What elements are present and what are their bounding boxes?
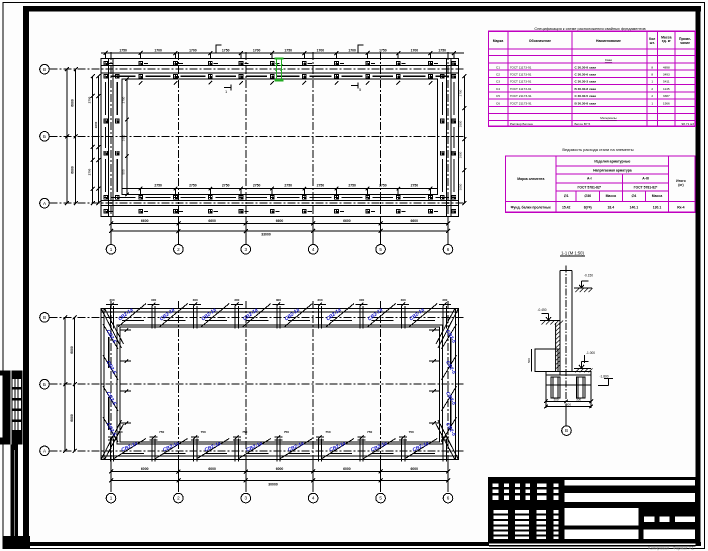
svg-text:300: 300 (576, 397, 581, 401)
svg-text:2700: 2700 (88, 168, 92, 175)
svg-text:2750: 2750 (253, 184, 261, 188)
svg-text:В: В (43, 315, 46, 320)
svg-text:Фунд. балки пролетные: Фунд. балки пролетные (511, 205, 551, 209)
svg-text:4898: 4898 (663, 65, 670, 69)
svg-text:1700: 1700 (189, 49, 197, 53)
svg-text:1: 1 (110, 247, 113, 252)
svg-text:6000: 6000 (276, 467, 284, 471)
svg-text:750: 750 (159, 430, 164, 434)
svg-text:Наименование: Наименование (596, 39, 621, 43)
svg-text:ГОСТ 11173-91: ГОСТ 11173-91 (510, 73, 532, 77)
svg-text:1700: 1700 (348, 49, 356, 53)
svg-text:4: 4 (312, 496, 315, 501)
svg-text:-0.450: -0.450 (538, 308, 547, 312)
svg-text:300: 300 (276, 298, 281, 302)
svg-text:8: 8 (651, 73, 653, 77)
svg-text:1: 1 (651, 101, 653, 105)
svg-text:Б: Б (43, 134, 46, 139)
svg-text:15.42: 15.42 (562, 205, 571, 209)
svg-text:1-1 (М 1:50): 1-1 (М 1:50) (561, 251, 584, 256)
svg-text:2750: 2750 (379, 184, 387, 188)
svg-text:6000: 6000 (343, 467, 351, 471)
svg-text:6000: 6000 (411, 467, 419, 471)
svg-text:750: 750 (284, 430, 289, 434)
svg-text:750: 750 (409, 430, 414, 434)
svg-text:300: 300 (401, 298, 406, 302)
svg-text:1750: 1750 (379, 49, 387, 53)
svg-text:1750: 1750 (119, 49, 127, 53)
svg-text:шт.: шт. (650, 41, 655, 45)
svg-text:6600: 6600 (208, 219, 216, 223)
svg-text:6: 6 (447, 496, 450, 501)
svg-text:А-III: А-III (642, 177, 648, 181)
svg-text:300: 300 (442, 298, 447, 302)
svg-text:6600: 6600 (343, 219, 351, 223)
svg-text:В 30.30-8 сваи: В 30.30-8 сваи (575, 101, 597, 105)
svg-text:750: 750 (201, 430, 206, 434)
svg-text:2750: 2750 (154, 184, 162, 188)
svg-text:2700: 2700 (459, 89, 463, 96)
svg-text:(кг): (кг) (678, 183, 683, 187)
svg-text:2750: 2750 (348, 184, 356, 188)
svg-text:5: 5 (379, 496, 382, 501)
svg-text:300: 300 (553, 397, 558, 401)
svg-text:4: 4 (312, 247, 315, 252)
svg-text:3: 3 (245, 247, 248, 252)
svg-text:2750: 2750 (411, 184, 419, 188)
svg-text:Б: Б (43, 382, 46, 387)
svg-text:С 30.30-5 сваи: С 30.30-5 сваи (575, 94, 597, 98)
svg-text:750: 750 (242, 430, 247, 434)
svg-text:Материалы: Материалы (600, 116, 617, 120)
svg-text:1145: 1145 (663, 87, 670, 91)
svg-text:Обозначение: Обозначение (529, 39, 551, 43)
svg-text:1750: 1750 (438, 49, 446, 53)
svg-text:С4: С4 (496, 87, 500, 91)
svg-text:С 30.30-6 сваи: С 30.30-6 сваи (575, 73, 597, 77)
svg-text:1600: 1600 (122, 134, 126, 141)
svg-text:1700: 1700 (317, 49, 325, 53)
svg-text:ГОСТ 11173-91: ГОСТ 11173-91 (510, 87, 532, 91)
svg-text:С6: С6 (496, 101, 500, 105)
svg-text:750: 750 (325, 430, 330, 434)
svg-text:С 30.30-3 сваи: С 30.30-3 сваи (575, 80, 597, 84)
svg-text:5: 5 (379, 247, 382, 252)
svg-text:1750: 1750 (222, 49, 230, 53)
svg-text:В 30.30-8 сваи: В 30.30-8 сваи (575, 87, 597, 91)
svg-text:3: 3 (245, 496, 248, 501)
svg-text:8(74): 8(74) (584, 205, 592, 209)
svg-text:С 30.30-8 сваи: С 30.30-8 сваи (575, 65, 597, 69)
svg-text:6000: 6000 (71, 99, 75, 107)
svg-text:6600: 6600 (141, 219, 149, 223)
svg-text:чание: чание (680, 41, 690, 45)
svg-text:300: 300 (359, 298, 364, 302)
svg-text:6000: 6000 (70, 414, 74, 422)
svg-text:2700: 2700 (122, 96, 126, 103)
svg-text:Марка: Марка (493, 39, 504, 43)
svg-text:6600: 6600 (411, 219, 419, 223)
svg-text:Напрягаемая арматура: Напрягаемая арматура (593, 169, 632, 173)
svg-text:500: 500 (527, 358, 531, 363)
svg-text:2: 2 (651, 94, 653, 98)
svg-text:В: В (565, 428, 568, 433)
svg-text:6000: 6000 (71, 166, 75, 174)
svg-text:8: 8 (651, 65, 653, 69)
svg-text:ГОСТ 21173-91: ГОСТ 21173-91 (510, 94, 532, 98)
svg-text:Марка элемента: Марка элемента (517, 177, 544, 181)
svg-text:∅4: ∅4 (631, 194, 636, 198)
svg-text:В: В (43, 67, 46, 72)
svg-text:-1.000: -1.000 (586, 351, 595, 355)
svg-text:2750: 2750 (284, 184, 292, 188)
svg-text:18.4: 18.4 (607, 205, 614, 209)
svg-text:6000: 6000 (141, 467, 149, 471)
svg-text:Сваи: Сваи (605, 58, 613, 62)
svg-text:33000: 33000 (261, 233, 271, 237)
svg-text:∅36: ∅36 (584, 194, 591, 198)
svg-text:ГОСТ 5781-82*: ГОСТ 5781-82* (634, 185, 658, 189)
svg-text:Бетон В7.5: Бетон В7.5 (575, 122, 591, 126)
svg-text:3387: 3387 (663, 94, 670, 98)
svg-text:С1: С1 (496, 65, 500, 69)
svg-text:300: 300 (234, 298, 239, 302)
svg-text:2750: 2750 (317, 184, 325, 188)
svg-text:1: 1 (651, 80, 653, 84)
svg-text:2: 2 (177, 496, 180, 501)
svg-text:3493: 3493 (663, 73, 670, 77)
svg-text:ГОСТ 11173-91: ГОСТ 11173-91 (510, 80, 532, 84)
svg-text:750: 750 (367, 430, 372, 434)
svg-text:600: 600 (566, 403, 571, 407)
svg-text:Ведомость расхода стали на эле: Ведомость расхода стали на элементы (562, 147, 633, 152)
svg-text:1800: 1800 (459, 120, 463, 127)
svg-text:1: 1 (110, 496, 113, 501)
svg-text:750: 750 (117, 430, 122, 434)
svg-text:98.71 м3: 98.71 м3 (682, 122, 695, 126)
svg-text:ГОСТ 5781-82*: ГОСТ 5781-82* (577, 185, 601, 189)
svg-text:1566: 1566 (663, 101, 670, 105)
svg-text:2: 2 (177, 247, 180, 252)
svg-text:140.1: 140.1 (630, 205, 639, 209)
svg-text:Изделия арматурные: Изделия арматурные (594, 160, 630, 164)
svg-text:2750: 2750 (189, 184, 197, 188)
svg-text:30000: 30000 (268, 482, 278, 486)
svg-text:6000: 6000 (208, 467, 216, 471)
svg-text:6000: 6000 (70, 346, 74, 354)
svg-text:Копировал Формат А1: Копировал Формат А1 (648, 545, 694, 550)
svg-text:Rx-4: Rx-4 (677, 205, 684, 209)
svg-text:6: 6 (447, 247, 450, 252)
svg-text:500: 500 (122, 169, 126, 174)
svg-text:1600: 1600 (94, 121, 98, 128)
svg-text:1700: 1700 (253, 49, 261, 53)
svg-text:2: 2 (651, 87, 653, 91)
svg-text:Масса: Масса (652, 194, 663, 198)
svg-text:130.1: 130.1 (653, 205, 662, 209)
svg-text:Масса: Масса (606, 194, 617, 198)
svg-text:А-I: А-I (587, 177, 592, 181)
svg-text:ГОСТ 11173-91: ГОСТ 11173-91 (510, 65, 532, 69)
svg-text:2700: 2700 (88, 96, 92, 103)
svg-text:6600: 6600 (276, 219, 284, 223)
svg-text:Спецификация к схеме расположе: Спецификация к схеме расположения свайны… (534, 26, 645, 31)
svg-text:-0.150: -0.150 (584, 273, 593, 277)
svg-text:Раствор Бетона: Раствор Бетона (510, 122, 533, 126)
svg-text:-1.800: -1.800 (600, 375, 609, 379)
svg-text:С3: С3 (496, 80, 500, 84)
svg-text:300: 300 (151, 298, 156, 302)
svg-text:∅1: ∅1 (564, 194, 569, 198)
svg-text:С2: С2 (496, 73, 500, 77)
svg-text:2750: 2750 (222, 184, 230, 188)
svg-text:300: 300 (193, 298, 198, 302)
svg-text:300: 300 (317, 298, 322, 302)
svg-text:1700: 1700 (154, 49, 162, 53)
svg-text:1700: 1700 (411, 49, 419, 53)
svg-text:1800: 1800 (459, 151, 463, 158)
svg-text:ГОСТ 21173-91: ГОСТ 21173-91 (510, 101, 532, 105)
svg-text:С5: С5 (496, 94, 500, 98)
svg-text:300: 300 (109, 298, 114, 302)
svg-text:3050: 3050 (459, 183, 463, 190)
svg-text:5411: 5411 (663, 80, 670, 84)
svg-text:ед. кг: ед. кг (662, 39, 672, 43)
svg-text:1750: 1750 (284, 49, 292, 53)
